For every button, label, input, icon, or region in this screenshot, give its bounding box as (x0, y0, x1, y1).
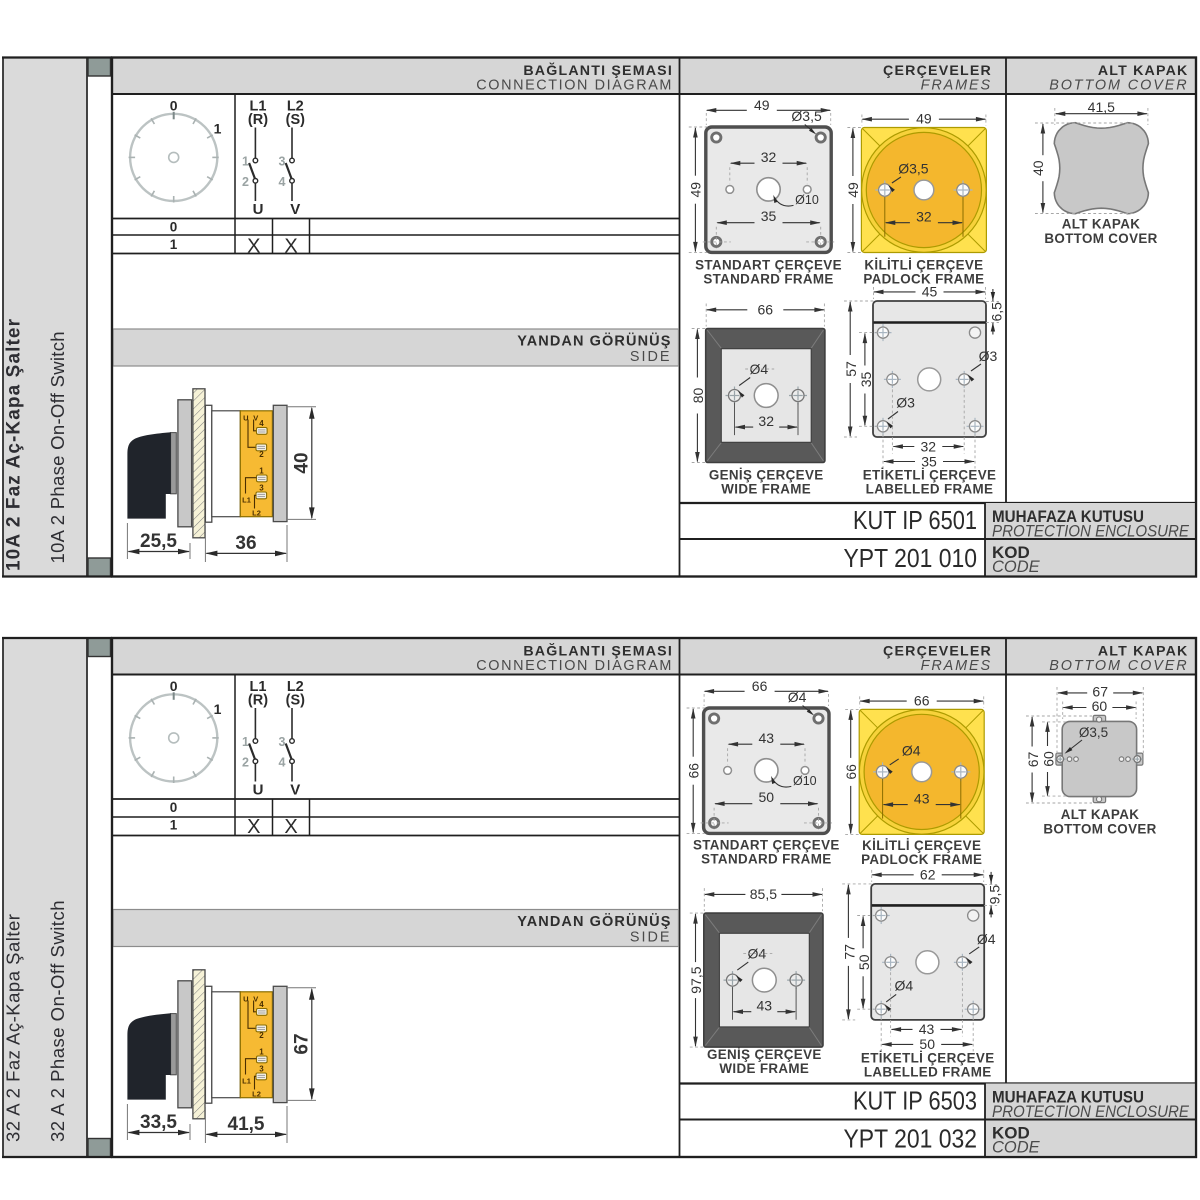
svg-text:Ø4: Ø4 (788, 689, 807, 705)
svg-text:GENİŞ ÇERÇEVE: GENİŞ ÇERÇEVE (707, 1047, 822, 1062)
svg-text:32 A 2 Faz Aç-Kapa Şalter: 32 A 2 Faz Aç-Kapa Şalter (3, 914, 24, 1142)
svg-text:V: V (290, 782, 300, 799)
svg-text:ALT KAPAK: ALT KAPAK (1062, 217, 1141, 232)
svg-text:ÇERÇEVELER: ÇERÇEVELER (883, 63, 992, 79)
svg-text:L1: L1 (242, 1077, 251, 1086)
svg-text:V: V (290, 201, 300, 218)
svg-text:1: 1 (170, 237, 178, 252)
svg-text:49: 49 (916, 111, 932, 127)
svg-text:0: 0 (170, 800, 178, 815)
svg-text:KUT IP 6501: KUT IP 6501 (853, 507, 977, 535)
svg-text:40: 40 (292, 452, 313, 473)
svg-text:43: 43 (919, 1021, 935, 1037)
svg-text:YANDAN GÖRÜNÜŞ: YANDAN GÖRÜNÜŞ (517, 332, 671, 349)
svg-text:L1: L1 (242, 496, 251, 505)
svg-text:Ø10: Ø10 (795, 193, 819, 207)
svg-text:(S): (S) (286, 112, 306, 128)
svg-text:L2: L2 (252, 1090, 261, 1099)
svg-text:1: 1 (214, 701, 222, 717)
svg-text:YPT 201 010: YPT 201 010 (844, 545, 978, 573)
svg-text:LABELLED FRAME: LABELLED FRAME (864, 1065, 992, 1080)
svg-text:ALT KAPAK: ALT KAPAK (1098, 63, 1189, 79)
svg-text:66: 66 (914, 693, 930, 709)
svg-text:77: 77 (841, 944, 857, 960)
svg-text:32: 32 (921, 438, 937, 454)
svg-text:32: 32 (758, 413, 774, 429)
svg-text:35: 35 (761, 208, 777, 224)
svg-text:85,5: 85,5 (750, 886, 777, 902)
svg-text:3: 3 (279, 155, 286, 169)
svg-text:WIDE FRAME: WIDE FRAME (721, 482, 811, 497)
svg-text:43: 43 (759, 730, 775, 746)
svg-text:BOTTOM COVER: BOTTOM COVER (1049, 658, 1188, 674)
svg-text:60: 60 (1041, 751, 1057, 767)
svg-text:1: 1 (242, 735, 249, 749)
svg-text:STANDART ÇERÇEVE: STANDART ÇERÇEVE (693, 838, 840, 853)
svg-text:(R): (R) (248, 112, 268, 128)
svg-text:Ø3,5: Ø3,5 (1079, 725, 1108, 740)
svg-text:Ø3,5: Ø3,5 (898, 161, 929, 177)
svg-text:ALT KAPAK: ALT KAPAK (1061, 807, 1140, 822)
svg-text:ÇERÇEVELER: ÇERÇEVELER (883, 644, 992, 660)
svg-text:YANDAN GÖRÜNÜŞ: YANDAN GÖRÜNÜŞ (517, 913, 671, 930)
svg-text:45: 45 (922, 283, 938, 299)
svg-text:50: 50 (856, 954, 872, 970)
svg-text:SIDE: SIDE (630, 349, 672, 365)
svg-text:0: 0 (170, 98, 178, 114)
svg-text:CODE: CODE (992, 558, 1041, 576)
svg-text:3: 3 (279, 735, 286, 749)
svg-text:Ø3: Ø3 (896, 395, 915, 411)
svg-text:66: 66 (843, 764, 859, 780)
svg-text:97,5: 97,5 (688, 966, 704, 993)
svg-text:1: 1 (259, 466, 264, 475)
svg-text:Ø10: Ø10 (793, 774, 817, 788)
svg-text:ALT KAPAK: ALT KAPAK (1098, 644, 1189, 660)
svg-text:25,5: 25,5 (140, 531, 177, 552)
svg-text:KUT IP 6503: KUT IP 6503 (853, 1088, 977, 1116)
svg-text:0: 0 (170, 678, 178, 694)
svg-text:49: 49 (754, 97, 770, 113)
svg-text:YPT 201 032: YPT 201 032 (844, 1125, 978, 1153)
svg-text:1: 1 (170, 818, 178, 833)
svg-text:X: X (284, 236, 297, 258)
svg-text:2: 2 (259, 1031, 264, 1040)
svg-text:49: 49 (688, 182, 704, 198)
svg-text:41,5: 41,5 (1088, 99, 1115, 115)
svg-text:FRAMES: FRAMES (921, 78, 992, 94)
svg-text:WIDE FRAME: WIDE FRAME (719, 1061, 809, 1076)
svg-text:U: U (253, 201, 264, 218)
svg-text:X: X (284, 816, 297, 838)
svg-text:BAĞLANTI ŞEMASI: BAĞLANTI ŞEMASI (523, 642, 673, 660)
svg-text:1: 1 (214, 121, 222, 137)
svg-text:BOTTOM COVER: BOTTOM COVER (1049, 78, 1188, 94)
svg-text:43: 43 (914, 790, 930, 806)
svg-text:49: 49 (845, 182, 861, 198)
svg-text:57: 57 (843, 361, 859, 377)
svg-text:4: 4 (259, 419, 264, 428)
svg-text:66: 66 (752, 678, 768, 694)
svg-text:2: 2 (259, 450, 264, 459)
svg-text:L2: L2 (252, 509, 261, 518)
svg-text:40: 40 (1030, 160, 1046, 176)
svg-text:X: X (247, 816, 260, 838)
svg-text:STANDARD FRAME: STANDARD FRAME (703, 272, 833, 287)
svg-text:60: 60 (1092, 698, 1108, 714)
svg-text:50: 50 (759, 789, 775, 805)
svg-text:BAĞLANTI ŞEMASI: BAĞLANTI ŞEMASI (523, 61, 673, 79)
svg-text:SIDE: SIDE (630, 929, 672, 945)
svg-text:PADLOCK FRAME: PADLOCK FRAME (861, 852, 982, 867)
svg-text:43: 43 (757, 998, 773, 1014)
svg-text:6,5: 6,5 (988, 302, 1004, 322)
svg-text:PROTECTION ENCLOSURE: PROTECTION ENCLOSURE (992, 1103, 1190, 1121)
svg-text:66: 66 (685, 763, 701, 779)
svg-text:10A 2 Phase On-Off Switch: 10A 2 Phase On-Off Switch (47, 331, 68, 563)
svg-text:STANDARD FRAME: STANDARD FRAME (701, 852, 831, 867)
svg-text:Ø3: Ø3 (979, 348, 998, 364)
svg-text:10A 2 Faz Aç-Kapa Şalter: 10A 2 Faz Aç-Kapa Şalter (4, 318, 25, 571)
svg-text:LABELLED FRAME: LABELLED FRAME (866, 482, 994, 497)
svg-text:36: 36 (235, 533, 256, 554)
svg-text:66: 66 (758, 301, 774, 317)
svg-text:2: 2 (242, 755, 249, 769)
svg-text:2: 2 (242, 175, 249, 189)
svg-text:KİLİTLİ ÇERÇEVE: KİLİTLİ ÇERÇEVE (864, 258, 983, 273)
svg-text:BOTTOM COVER: BOTTOM COVER (1044, 231, 1157, 246)
svg-text:KİLİTLİ ÇERÇEVE: KİLİTLİ ÇERÇEVE (862, 838, 981, 853)
svg-text:62: 62 (920, 866, 936, 882)
svg-text:GENİŞ ÇERÇEVE: GENİŞ ÇERÇEVE (709, 468, 824, 483)
svg-text:STANDART ÇERÇEVE: STANDART ÇERÇEVE (695, 258, 842, 273)
svg-text:4: 4 (279, 755, 286, 769)
svg-text:0: 0 (170, 220, 178, 235)
svg-text:X: X (247, 236, 260, 258)
svg-text:Ø4: Ø4 (894, 977, 913, 993)
svg-text:1: 1 (259, 1047, 264, 1056)
svg-text:BOTTOM COVER: BOTTOM COVER (1043, 822, 1156, 837)
svg-text:67: 67 (1025, 752, 1041, 768)
svg-text:32: 32 (916, 209, 932, 225)
svg-text:ETİKETLİ ÇERÇEVE: ETİKETLİ ÇERÇEVE (861, 1051, 995, 1066)
svg-text:4: 4 (279, 175, 286, 189)
svg-text:CONNECTION DIAGRAM: CONNECTION DIAGRAM (476, 658, 673, 674)
svg-text:32 A 2 Phase On-Off Switch: 32 A 2 Phase On-Off Switch (47, 900, 68, 1142)
svg-text:32: 32 (761, 149, 777, 165)
svg-text:(R): (R) (248, 693, 268, 709)
svg-text:80: 80 (690, 388, 706, 404)
svg-text:Ø4: Ø4 (977, 931, 996, 947)
svg-text:4: 4 (259, 1000, 264, 1009)
svg-text:Ø4: Ø4 (902, 743, 921, 759)
svg-text:3: 3 (259, 1064, 264, 1073)
svg-text:ETİKETLİ ÇERÇEVE: ETİKETLİ ÇERÇEVE (863, 468, 997, 483)
svg-text:(S): (S) (286, 693, 306, 709)
svg-text:41,5: 41,5 (228, 1114, 265, 1135)
svg-text:U: U (253, 782, 264, 799)
svg-text:FRAMES: FRAMES (921, 658, 992, 674)
svg-text:35: 35 (858, 372, 874, 388)
svg-text:PROTECTION ENCLOSURE: PROTECTION ENCLOSURE (992, 522, 1190, 540)
svg-text:CONNECTION DIAGRAM: CONNECTION DIAGRAM (476, 78, 673, 94)
svg-text:3: 3 (259, 483, 264, 492)
svg-text:1: 1 (242, 155, 249, 169)
svg-text:33,5: 33,5 (140, 1112, 177, 1133)
svg-text:9,5: 9,5 (987, 885, 1003, 905)
svg-text:CODE: CODE (992, 1139, 1041, 1157)
svg-text:67: 67 (292, 1033, 313, 1054)
svg-text:Ø3,5: Ø3,5 (791, 108, 822, 124)
